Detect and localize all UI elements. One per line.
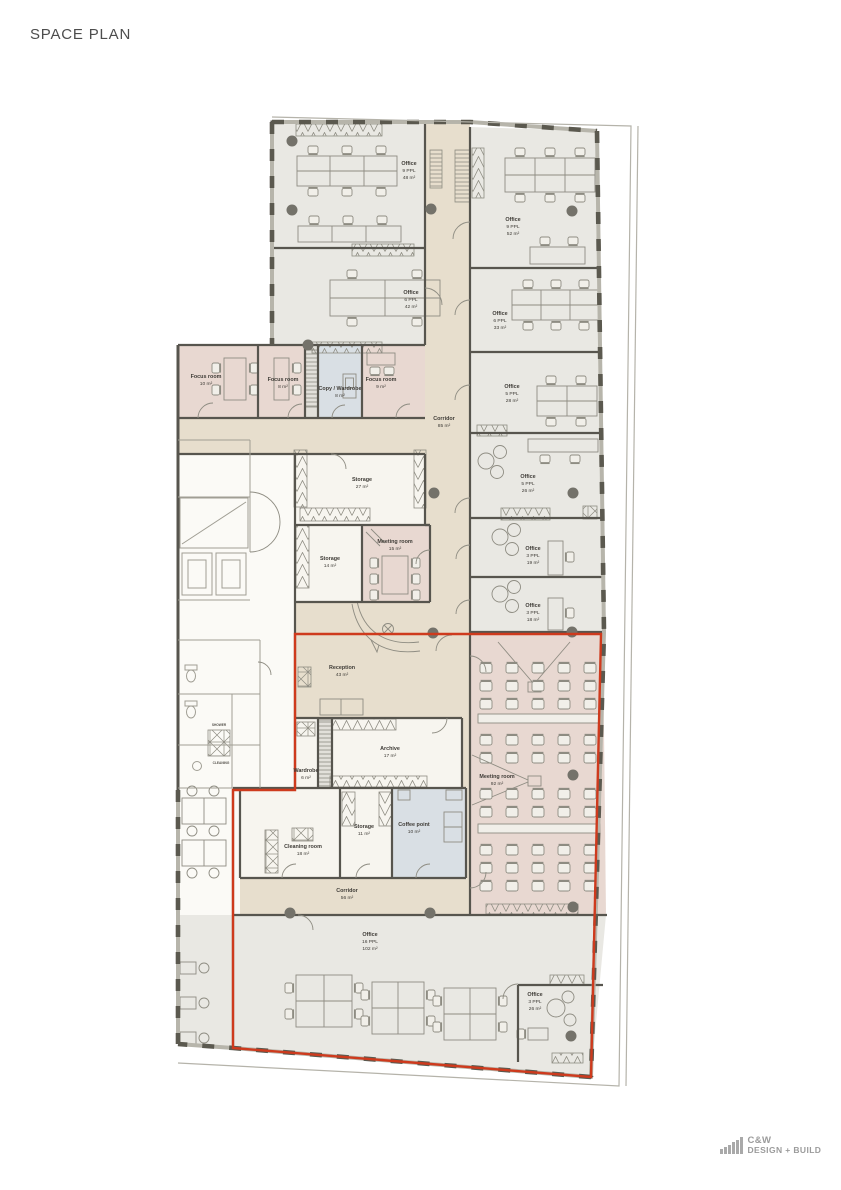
- svg-text:92 m²: 92 m²: [491, 781, 504, 787]
- svg-text:9 PPL: 9 PPL: [506, 224, 520, 230]
- label-core-shower: SHOWER: [212, 723, 227, 727]
- svg-text:10 m²: 10 m²: [408, 829, 421, 835]
- svg-text:Focus room: Focus room: [191, 374, 222, 380]
- office-d-desks: [512, 280, 600, 330]
- label-office-d: Office 6 PPL 33 m²: [492, 311, 507, 331]
- svg-text:56 m²: 56 m²: [341, 895, 354, 901]
- reception-floor: [295, 602, 425, 718]
- svg-text:Storage: Storage: [320, 556, 340, 562]
- svg-text:3 PPL: 3 PPL: [528, 999, 542, 1005]
- logo-tagline: DESIGN + BUILD: [748, 1146, 822, 1155]
- svg-text:10 m²: 10 m²: [200, 381, 213, 387]
- svg-text:15 m²: 15 m²: [389, 546, 402, 552]
- svg-text:Focus room: Focus room: [268, 377, 299, 383]
- svg-text:8 m²: 8 m²: [335, 393, 345, 399]
- svg-text:16 PPL: 16 PPL: [362, 939, 378, 945]
- label-office-a: Office 9 PPL 48 m²: [401, 161, 416, 181]
- svg-text:Office: Office: [362, 932, 377, 938]
- svg-text:Wardrobe: Wardrobe: [294, 768, 319, 774]
- label-office-e: Office 5 PPL 28 m²: [504, 384, 519, 404]
- svg-text:9 m²: 9 m²: [376, 384, 386, 390]
- svg-text:Office: Office: [525, 603, 540, 609]
- svg-text:Cleaning room: Cleaning room: [284, 844, 322, 850]
- svg-text:Storage: Storage: [352, 477, 372, 483]
- svg-text:48 m²: 48 m²: [403, 175, 416, 181]
- svg-text:85 m²: 85 m²: [438, 423, 451, 429]
- label-office-f: Office 5 PPL 26 m²: [520, 474, 535, 494]
- label-office-g: Office 3 PPL 19 m²: [525, 546, 540, 566]
- svg-text:6 PPL: 6 PPL: [493, 318, 507, 324]
- svg-text:Office: Office: [403, 290, 418, 296]
- svg-text:Corridor: Corridor: [433, 416, 455, 422]
- floor-plan: Office 9 PPL 48 m² Office 6 PPL 42 m² Of…: [0, 0, 841, 1190]
- label-office-c: Office 9 PPL 52 m²: [505, 217, 520, 237]
- svg-text:5 PPL: 5 PPL: [521, 481, 535, 487]
- coffee-floor: [392, 788, 466, 878]
- logo-text: C&W DESIGN + BUILD: [748, 1136, 822, 1155]
- svg-text:Office: Office: [401, 161, 416, 167]
- cleaning-floor: [240, 788, 340, 878]
- svg-text:52 m²: 52 m²: [507, 231, 520, 237]
- svg-text:102 m²: 102 m²: [362, 946, 378, 952]
- label-office-b: Office 6 PPL 42 m²: [403, 290, 418, 310]
- svg-text:Office: Office: [492, 311, 507, 317]
- svg-text:14 m²: 14 m²: [324, 563, 337, 569]
- svg-text:CLEANING: CLEANING: [213, 761, 230, 765]
- svg-text:Office: Office: [504, 384, 519, 390]
- svg-text:11 m²: 11 m²: [358, 831, 371, 837]
- label-core-cleaning: CLEANING: [213, 761, 230, 765]
- svg-text:9 PPL: 9 PPL: [402, 168, 416, 174]
- label-office-h: Office 3 PPL 18 m²: [525, 603, 540, 623]
- svg-text:33 m²: 33 m²: [494, 325, 507, 331]
- page-title: SPACE PLAN: [30, 26, 131, 43]
- office-a-b-floor: [272, 122, 425, 345]
- svg-text:8 m²: 8 m²: [278, 384, 288, 390]
- space-plan-page: SPACE PLAN: [0, 0, 841, 1190]
- svg-text:Reception: Reception: [329, 665, 355, 671]
- svg-text:Meeting room: Meeting room: [479, 774, 515, 780]
- cw-design-build-logo: C&W DESIGN + BUILD: [720, 1136, 821, 1155]
- svg-text:Coffee point: Coffee point: [398, 822, 430, 828]
- svg-text:SHOWER: SHOWER: [212, 723, 227, 727]
- corridor-b-floor: [240, 878, 470, 915]
- svg-text:26 m²: 26 m²: [522, 488, 535, 494]
- svg-text:43 m²: 43 m²: [336, 672, 349, 678]
- svg-text:Archive: Archive: [380, 746, 400, 752]
- corridor-west-floor: [178, 418, 425, 454]
- label-office-i: Office 16 PPL 102 m²: [362, 932, 378, 952]
- svg-text:17 m²: 17 m²: [384, 753, 397, 759]
- svg-text:Meeting room: Meeting room: [377, 539, 413, 545]
- svg-text:Focus room: Focus room: [366, 377, 397, 383]
- svg-text:Office: Office: [505, 217, 520, 223]
- existing-office-floor: [178, 915, 233, 1048]
- svg-text:Office: Office: [525, 546, 540, 552]
- svg-text:3 PPL: 3 PPL: [526, 553, 540, 559]
- svg-text:19 m²: 19 m²: [527, 560, 540, 566]
- svg-text:28 m²: 28 m²: [506, 398, 519, 404]
- svg-text:6 PPL: 6 PPL: [404, 297, 418, 303]
- svg-text:6 m²: 6 m²: [301, 775, 311, 781]
- svg-text:5 PPL: 5 PPL: [505, 391, 519, 397]
- svg-text:27 m²: 27 m²: [356, 484, 369, 490]
- svg-text:Storage: Storage: [354, 824, 374, 830]
- svg-text:26 m²: 26 m²: [529, 1006, 542, 1012]
- svg-text:3 PPL: 3 PPL: [526, 610, 540, 616]
- svg-text:18 m²: 18 m²: [527, 617, 540, 623]
- svg-text:42 m²: 42 m²: [405, 304, 418, 310]
- svg-text:Office: Office: [527, 992, 542, 998]
- svg-text:Office: Office: [520, 474, 535, 480]
- copy-floor: [318, 345, 362, 418]
- svg-text:18 m²: 18 m²: [297, 851, 310, 857]
- svg-text:Copy / Wardrobe: Copy / Wardrobe: [319, 386, 362, 392]
- logo-bars-icon: [720, 1136, 743, 1154]
- label-office-j: Office 3 PPL 26 m²: [527, 992, 542, 1012]
- svg-text:Corridor: Corridor: [336, 888, 358, 894]
